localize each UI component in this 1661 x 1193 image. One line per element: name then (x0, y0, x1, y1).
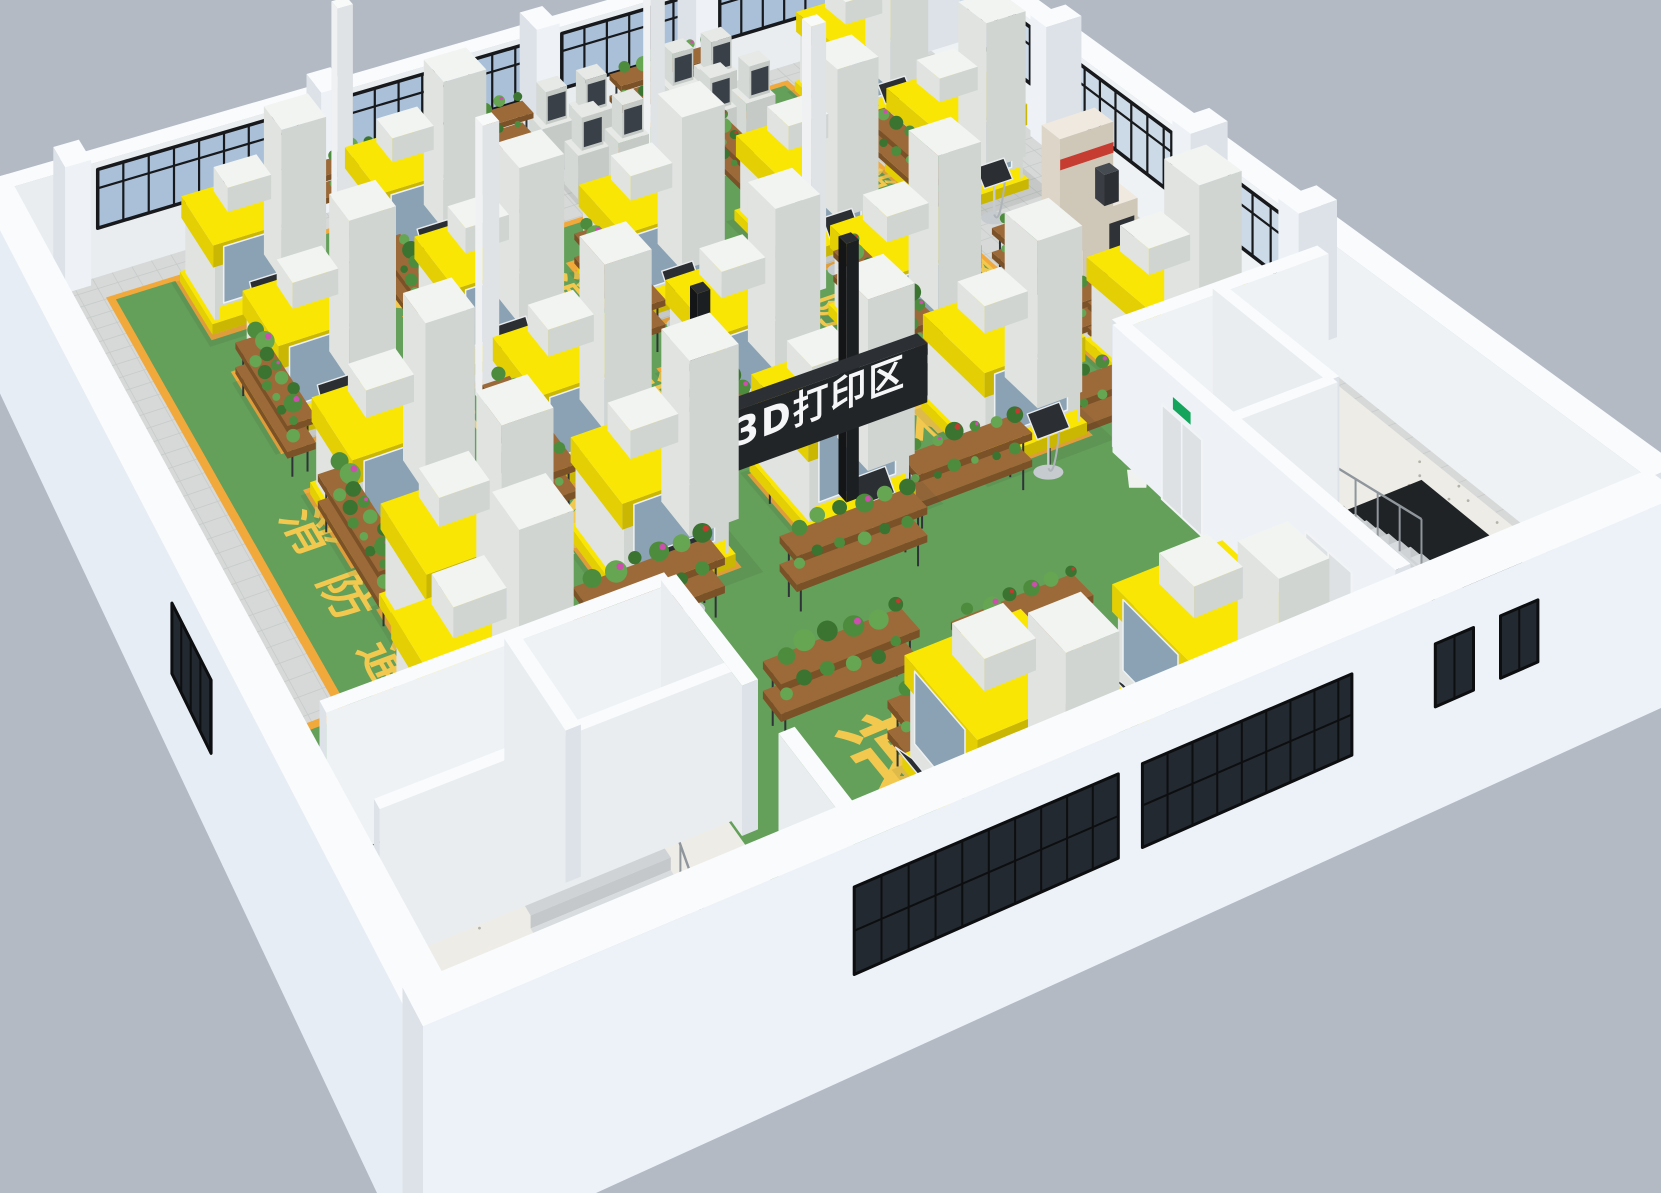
potted-plant (961, 603, 973, 615)
flower (703, 525, 709, 531)
potted-plant (649, 541, 669, 561)
potted-plant (970, 421, 981, 432)
flower (659, 544, 665, 550)
potted-plant (1043, 572, 1058, 587)
potted-plant (945, 422, 964, 441)
potted-plant (515, 121, 521, 127)
potted-plant (673, 534, 691, 552)
potted-plant (792, 520, 808, 536)
potted-plant (258, 365, 272, 379)
potted-plant (948, 458, 961, 471)
potted-plant (249, 355, 261, 367)
potted-plant (871, 649, 886, 664)
potted-plant (513, 92, 522, 101)
flower (865, 496, 871, 502)
potted-plant (1080, 398, 1089, 407)
potted-plant (888, 597, 903, 612)
flower (690, 40, 693, 43)
potted-plant (891, 146, 901, 156)
potted-plant (605, 560, 627, 582)
flower (350, 466, 357, 473)
potted-plant (1065, 566, 1076, 577)
potted-plant (1095, 355, 1109, 369)
potted-plant (553, 442, 565, 454)
flower (616, 563, 623, 570)
potted-plant (817, 621, 838, 642)
potted-plant (889, 116, 903, 130)
flower (293, 396, 299, 402)
potted-plant (991, 416, 1003, 428)
potted-plant (260, 347, 274, 361)
potted-plant (731, 160, 738, 167)
potted-plant (780, 687, 793, 700)
potted-plant (1023, 580, 1040, 597)
potted-plant (793, 629, 815, 651)
potted-plant (1003, 587, 1017, 601)
potted-plant (932, 435, 943, 446)
potted-plant (778, 647, 796, 665)
potted-plant (333, 488, 346, 501)
potted-plant (890, 636, 901, 647)
potted-plant (901, 516, 913, 528)
potted-plant (262, 380, 272, 390)
flower (734, 131, 737, 134)
potted-plant (877, 486, 893, 502)
flower (364, 497, 368, 501)
potted-plant (796, 669, 812, 685)
potted-plant (794, 558, 805, 569)
potted-plant (287, 382, 299, 394)
flower (919, 300, 923, 304)
flower (743, 381, 748, 386)
potted-plant (855, 494, 874, 513)
potted-plant (832, 500, 847, 515)
potted-plant (345, 481, 361, 497)
potted-plant (858, 531, 872, 545)
potted-plant (913, 299, 925, 311)
potted-plant (820, 661, 835, 676)
potted-plant (879, 139, 887, 147)
potted-plant (363, 509, 378, 524)
potted-plant (405, 274, 418, 287)
flower (854, 618, 861, 625)
potted-plant (878, 109, 890, 121)
machine-tower (329, 180, 396, 381)
floorplan-3d-scene: 消防通道消防通道消防通道消防通道消防通道消防通道 金属3D打印区 (0, 0, 1661, 1193)
potted-plant (695, 561, 709, 575)
box (1095, 163, 1119, 206)
potted-plant (628, 551, 641, 564)
flower (1015, 408, 1020, 413)
potted-plant (275, 371, 289, 385)
potted-plant (271, 359, 282, 370)
flower (276, 361, 280, 365)
flower (1071, 567, 1075, 571)
potted-plant (272, 393, 280, 401)
potted-plant (879, 523, 890, 534)
flower (1010, 589, 1014, 593)
potted-plant (286, 429, 300, 443)
potted-plant (692, 523, 712, 543)
potted-plant (934, 471, 942, 479)
potted-plant (992, 452, 1001, 461)
flower (938, 437, 941, 440)
flower (993, 599, 999, 605)
potted-plant (348, 517, 359, 528)
potted-plant (843, 615, 865, 637)
flower (1032, 582, 1037, 587)
potted-plant (284, 394, 303, 413)
flower (500, 97, 504, 101)
potted-plant (494, 95, 506, 107)
potted-plant (555, 477, 564, 486)
flower (1103, 356, 1107, 360)
potted-plant (491, 367, 505, 381)
potted-plant (583, 569, 602, 588)
potted-plant (400, 265, 408, 273)
potted-plant (289, 416, 298, 425)
potted-plant (846, 655, 862, 671)
potted-plant (971, 456, 979, 464)
potted-plant (1009, 442, 1021, 454)
potted-plant (869, 609, 889, 629)
flower (265, 333, 271, 339)
potted-plant (809, 507, 825, 523)
flower (896, 599, 901, 604)
potted-plant (619, 61, 631, 73)
potted-plant (360, 532, 369, 541)
potted-plant (834, 537, 845, 548)
potted-plant (365, 546, 376, 557)
flower (955, 424, 961, 430)
potted-plant (899, 479, 916, 496)
flower (975, 422, 978, 425)
potted-plant (343, 500, 358, 515)
factory-floorplan-stage: 消防通道消防通道消防通道消防通道消防通道消防通道 金属3D打印区 (0, 0, 1661, 1193)
potted-plant (358, 496, 370, 508)
potted-plant (812, 544, 823, 555)
flower (884, 110, 888, 114)
potted-plant (1097, 389, 1107, 399)
potted-plant (340, 463, 361, 484)
potted-plant (1007, 406, 1024, 423)
